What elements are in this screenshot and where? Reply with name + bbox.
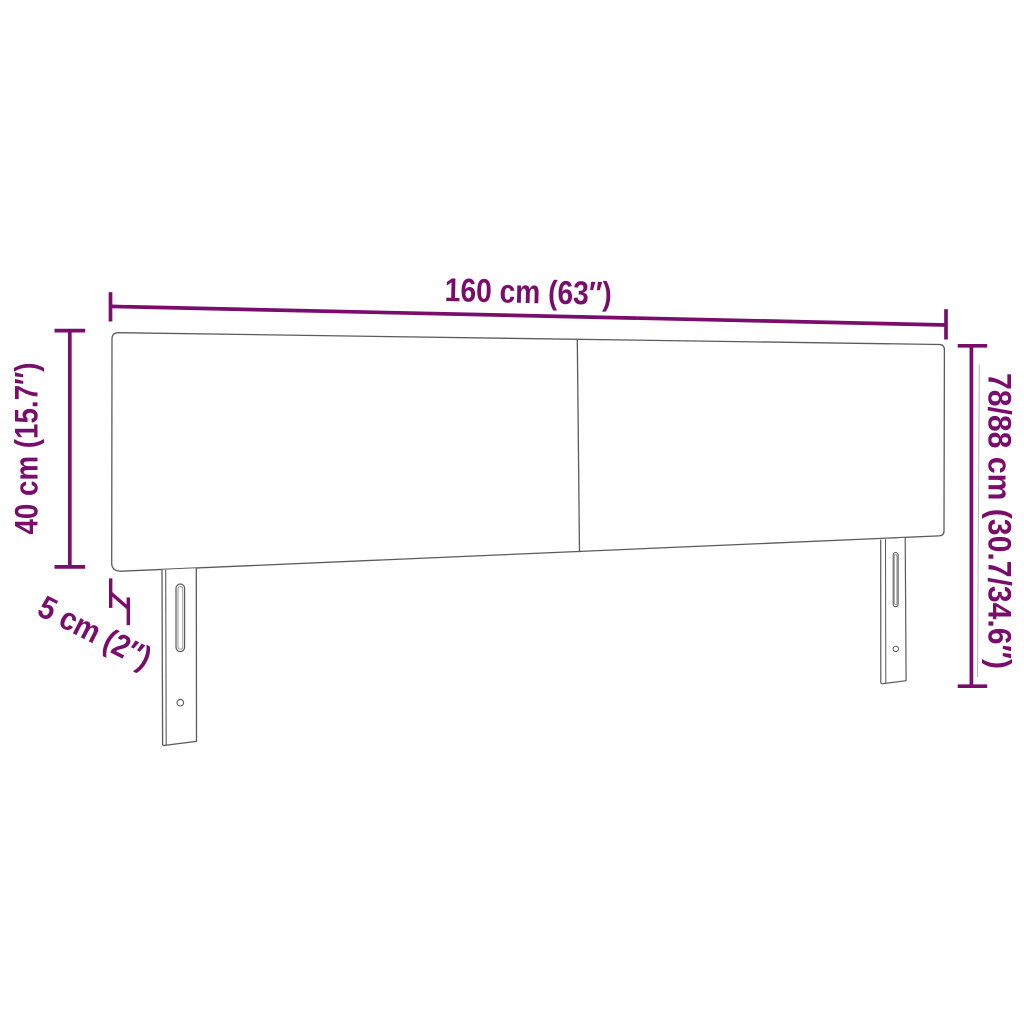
svg-text:40 cm (15.7″): 40 cm (15.7″) (9, 363, 45, 535)
svg-text:78/88 cm (30.7/34.6″): 78/88 cm (30.7/34.6″) (982, 373, 1018, 669)
svg-text:160 cm (63″): 160 cm (63″) (444, 271, 612, 312)
